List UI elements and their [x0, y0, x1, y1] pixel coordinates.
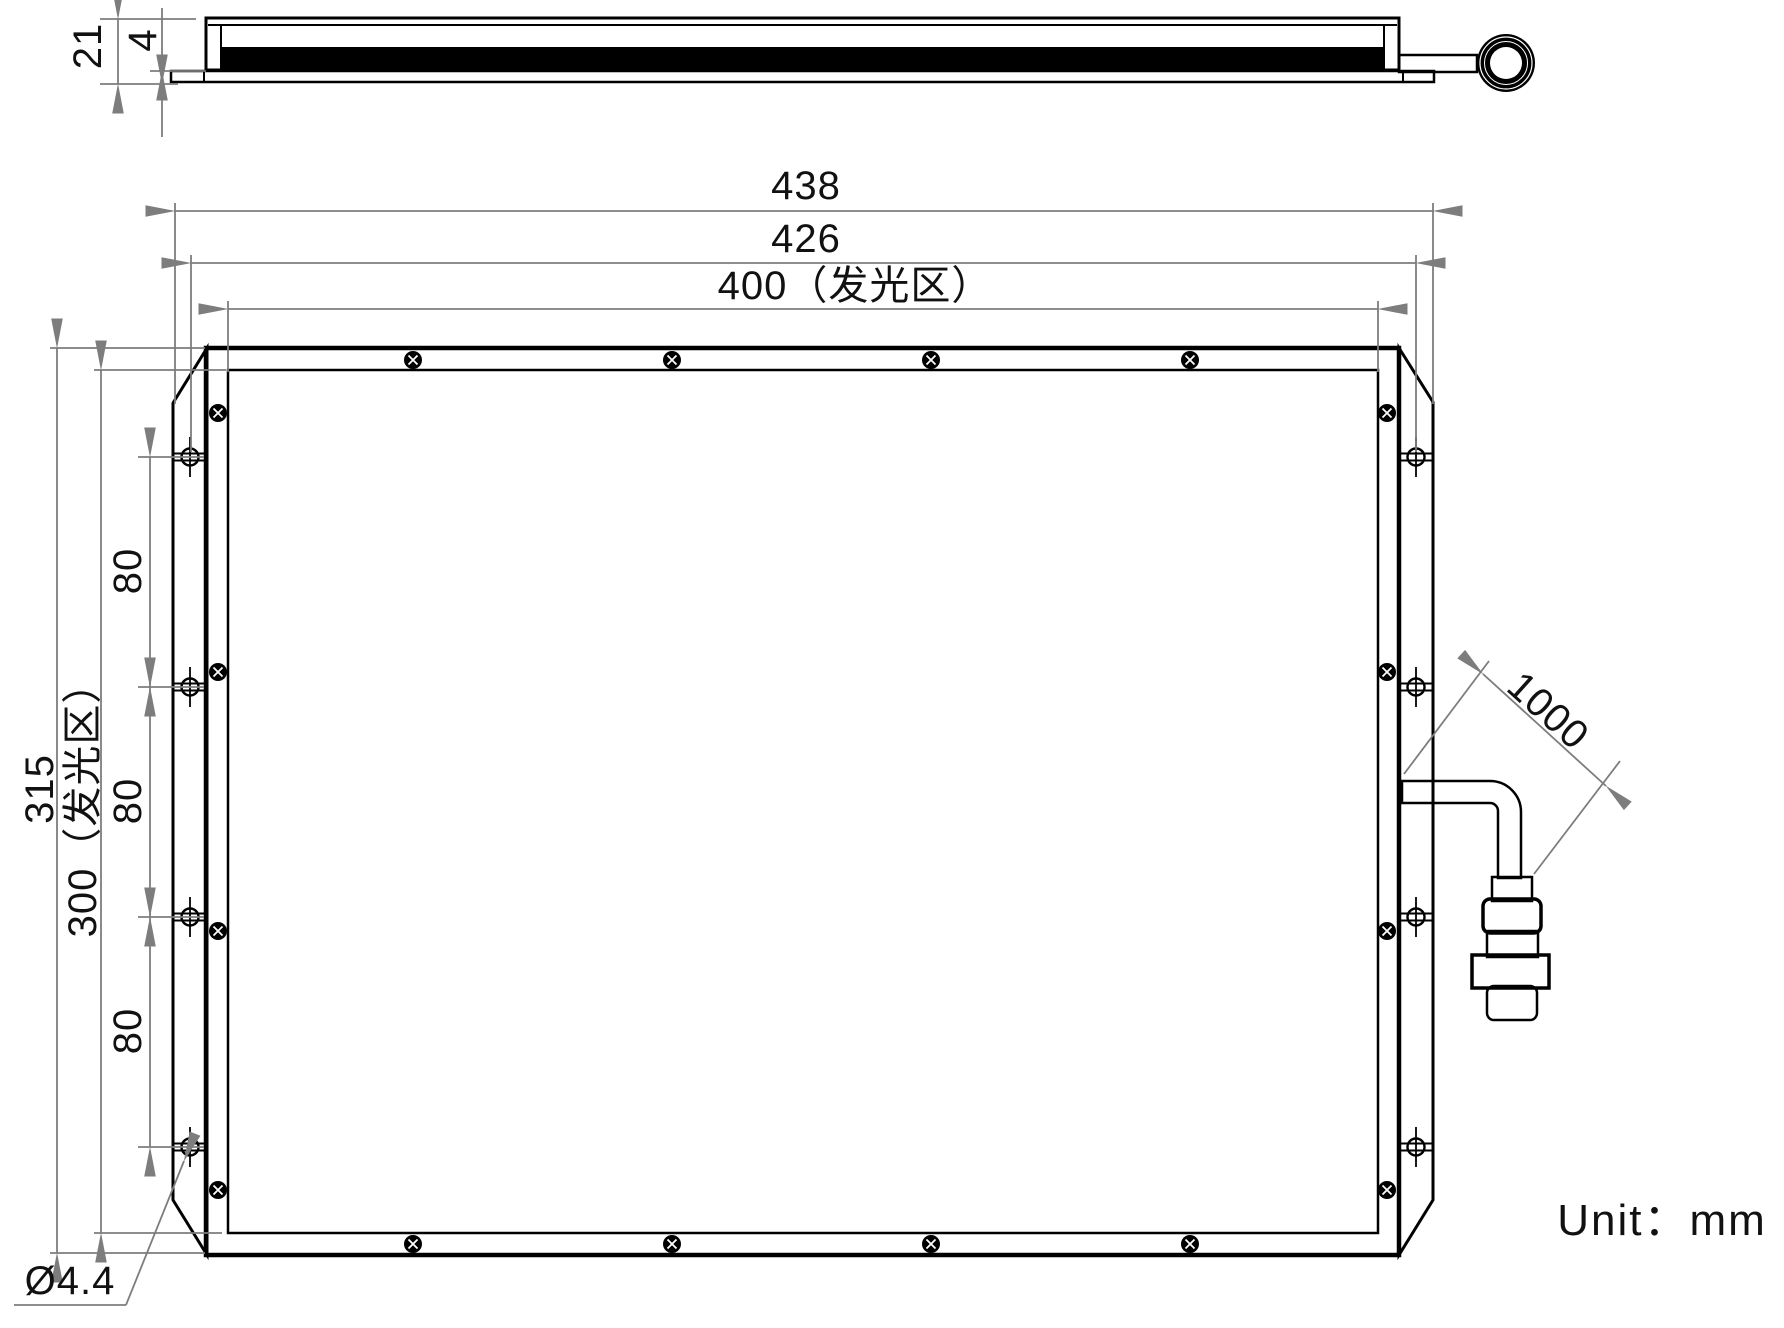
side-cable-ring [1477, 34, 1535, 92]
side-view [171, 18, 1535, 92]
dim-hole-pitch-2: 80 [108, 778, 148, 825]
mounting-hole [1400, 1127, 1432, 1167]
cable [1402, 781, 1521, 878]
dim-hole-diameter: Ø4.4 [25, 1261, 116, 1301]
screw [209, 922, 227, 940]
dim-emitting-width: 400（发光区） [718, 266, 993, 306]
frame-screws [209, 351, 1396, 1253]
left-mounting-flange [173, 348, 207, 1255]
screw [922, 1235, 940, 1253]
technical-drawing-svg [0, 0, 1784, 1328]
front-view [173, 348, 1549, 1255]
dim-mounting-width: 426 [771, 219, 841, 259]
screw [1181, 1235, 1199, 1253]
unit-note: Unit：mm [1557, 1199, 1767, 1243]
connector-plug [1472, 877, 1549, 1020]
dim-emitting-height: 300（发光区） [63, 663, 103, 938]
screw [209, 404, 227, 422]
screw [209, 663, 227, 681]
screw [1378, 663, 1396, 681]
dim-overall-height: 315 [20, 754, 60, 824]
screw [404, 1235, 422, 1253]
dim-hole-pitch-1: 80 [108, 548, 148, 595]
mounting-hole [1400, 897, 1432, 937]
screw [1181, 351, 1199, 369]
side-led-strip [222, 47, 1383, 70]
side-bottom-plate [171, 71, 1434, 82]
right-mounting-flange [1399, 348, 1433, 1255]
dim-overall-thickness: 21 [68, 23, 108, 70]
mounting-holes [174, 437, 1432, 1167]
screw [209, 1181, 227, 1199]
panel-frame [206, 348, 1399, 1255]
screw [922, 351, 940, 369]
screw [1378, 1181, 1396, 1199]
mounting-hole [1400, 667, 1432, 707]
panel-light-dimension-drawing: 21 4 438 426 400（发光区） 315 300（发光区） 80 80… [0, 0, 1784, 1328]
dim-hole-pitch-3: 80 [108, 1008, 148, 1055]
side-cable [1399, 55, 1477, 72]
light-emitting-area [228, 370, 1378, 1233]
screw [1378, 922, 1396, 940]
screw [663, 1235, 681, 1253]
dim-overall-width: 438 [771, 166, 841, 206]
screw [1378, 404, 1396, 422]
screw [404, 351, 422, 369]
dim-flange-thickness: 4 [123, 28, 163, 51]
screw [663, 351, 681, 369]
